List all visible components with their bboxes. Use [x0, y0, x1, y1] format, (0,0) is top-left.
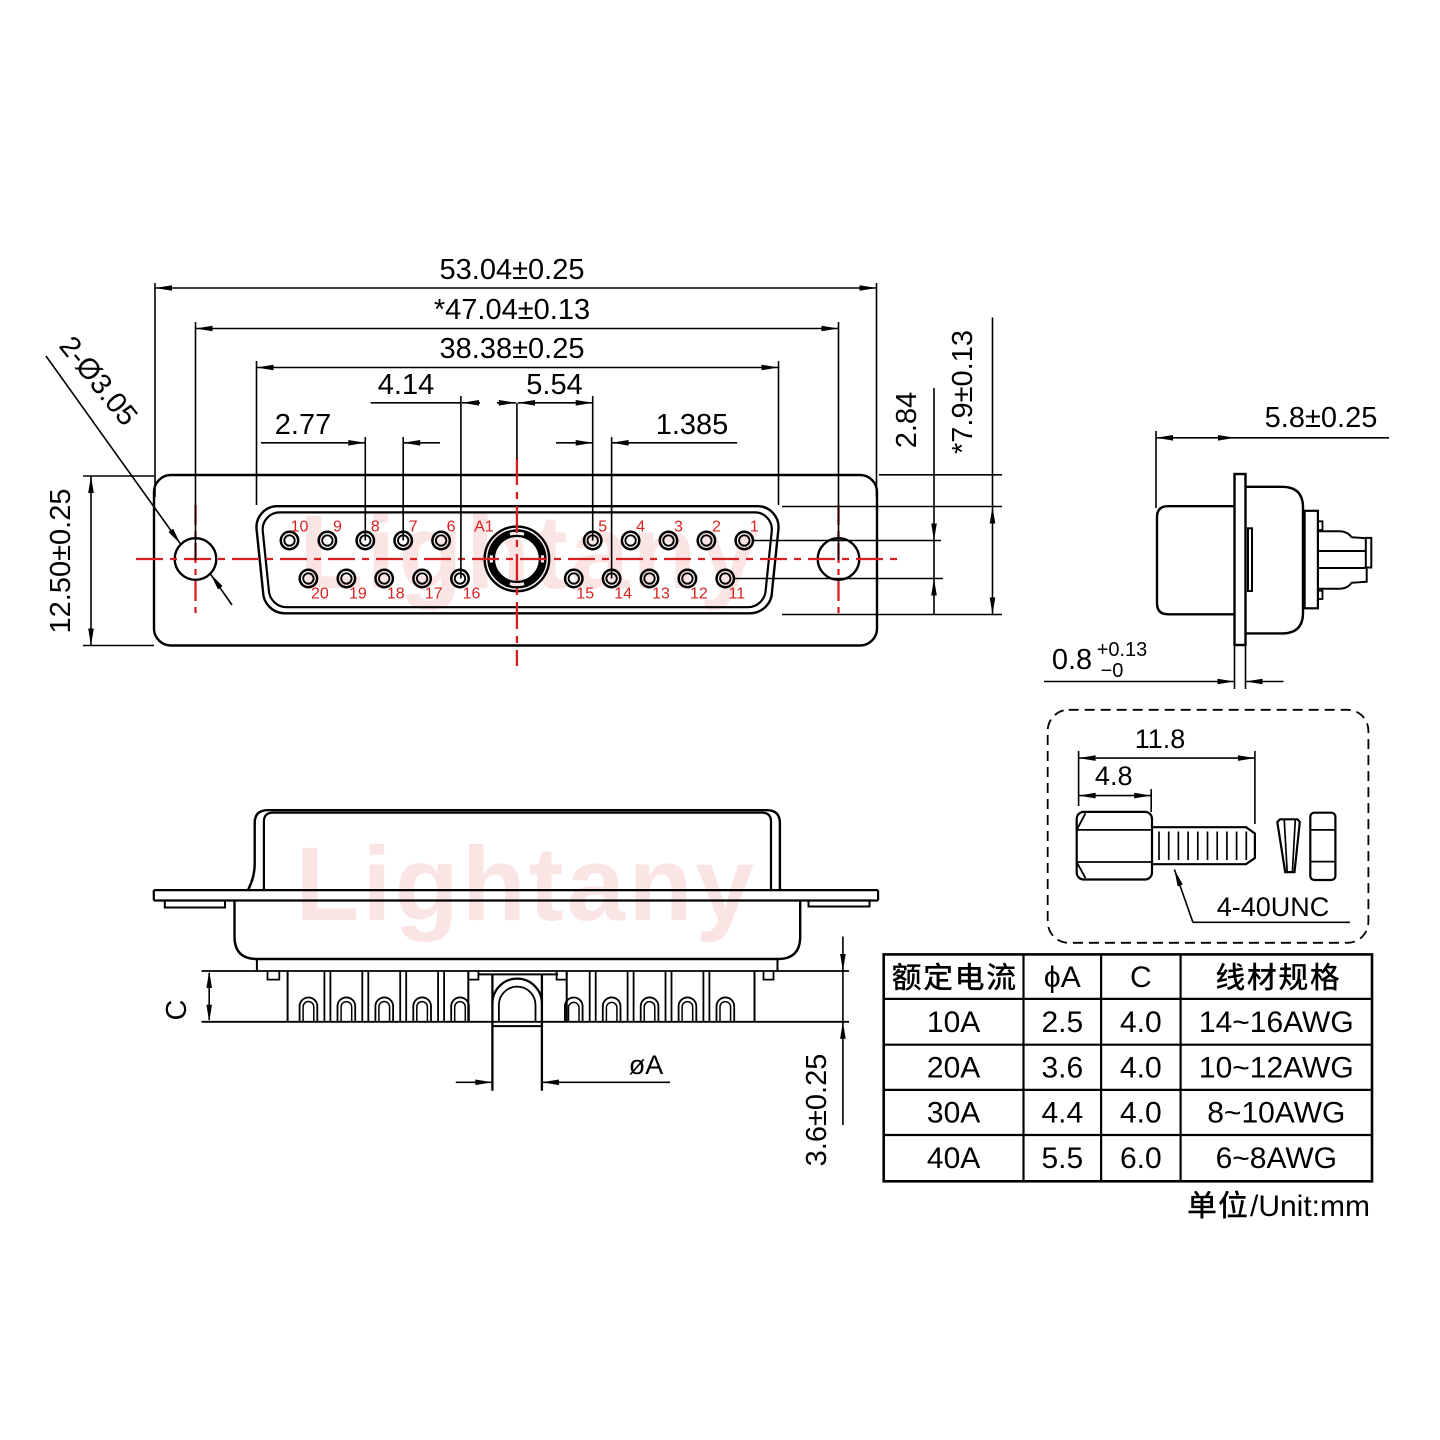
svg-text:18: 18 [387, 586, 405, 603]
svg-text:20A: 20A [927, 1051, 980, 1084]
svg-text:3: 3 [674, 519, 683, 536]
svg-text:6.0: 6.0 [1120, 1142, 1162, 1175]
svg-text:6: 6 [447, 519, 456, 536]
svg-text:3.6±0.25: 3.6±0.25 [801, 1054, 833, 1167]
svg-text:5.5: 5.5 [1041, 1142, 1083, 1175]
svg-text:40A: 40A [927, 1142, 980, 1175]
svg-text:/Unit:mm: /Unit:mm [1250, 1190, 1370, 1223]
svg-text:Lightany: Lightany [295, 826, 756, 943]
svg-text:4.0: 4.0 [1120, 1097, 1162, 1130]
svg-text:5.54: 5.54 [526, 369, 582, 401]
svg-text:19: 19 [349, 586, 367, 603]
svg-text:*7.9±0.13: *7.9±0.13 [947, 330, 979, 454]
svg-text:C: C [161, 1000, 193, 1021]
svg-text:*47.04±0.13: *47.04±0.13 [434, 294, 590, 326]
svg-text:10~12AWG: 10~12AWG [1199, 1051, 1354, 1084]
svg-text:6~8AWG: 6~8AWG [1216, 1142, 1337, 1175]
svg-text:4: 4 [636, 519, 645, 536]
svg-text:12.50±0.25: 12.50±0.25 [45, 489, 77, 634]
svg-text:ϕA: ϕA [1044, 961, 1081, 994]
svg-text:30A: 30A [927, 1097, 980, 1130]
svg-text:11: 11 [728, 586, 745, 603]
svg-text:11.8: 11.8 [1135, 724, 1186, 754]
svg-text:8~10AWG: 8~10AWG [1207, 1097, 1345, 1130]
svg-text:8: 8 [371, 519, 380, 536]
svg-text:12: 12 [690, 586, 708, 603]
svg-text:−0: −0 [1101, 660, 1124, 682]
svg-text:4.4: 4.4 [1041, 1097, 1083, 1130]
svg-text:13: 13 [652, 586, 670, 603]
svg-text:16: 16 [463, 586, 481, 603]
svg-text:4.0: 4.0 [1120, 1051, 1162, 1084]
svg-text:2: 2 [712, 519, 721, 536]
svg-text:38.38±0.25: 38.38±0.25 [440, 333, 585, 365]
svg-text:4.0: 4.0 [1120, 1006, 1162, 1039]
svg-text:14: 14 [614, 586, 632, 603]
svg-text:+0.13: +0.13 [1097, 639, 1148, 661]
svg-text:2.77: 2.77 [275, 409, 331, 441]
svg-text:53.04±0.25: 53.04±0.25 [440, 254, 585, 286]
svg-text:5: 5 [598, 519, 607, 536]
svg-text:2.84: 2.84 [891, 392, 923, 448]
svg-text:17: 17 [425, 586, 443, 603]
svg-text:1.385: 1.385 [656, 409, 729, 441]
svg-text:9: 9 [333, 519, 342, 536]
svg-text:4-40UNC: 4-40UNC [1217, 892, 1330, 922]
svg-text:14~16AWG: 14~16AWG [1199, 1006, 1354, 1039]
svg-text:10: 10 [291, 519, 309, 536]
svg-text:3.6: 3.6 [1041, 1051, 1083, 1084]
svg-text:5.8±0.25: 5.8±0.25 [1265, 402, 1378, 434]
svg-text:4.14: 4.14 [378, 369, 434, 401]
svg-text:10A: 10A [927, 1006, 980, 1039]
svg-text:1: 1 [750, 519, 759, 536]
svg-text:7: 7 [409, 519, 418, 536]
svg-text:2.5: 2.5 [1041, 1006, 1083, 1039]
svg-text:øA: øA [629, 1050, 664, 1080]
svg-text:0.8: 0.8 [1052, 644, 1092, 676]
svg-text:4.8: 4.8 [1095, 761, 1133, 791]
svg-text:20: 20 [311, 586, 329, 603]
svg-text:15: 15 [576, 586, 594, 603]
svg-text:A1: A1 [474, 519, 494, 536]
svg-text:C: C [1130, 961, 1152, 994]
